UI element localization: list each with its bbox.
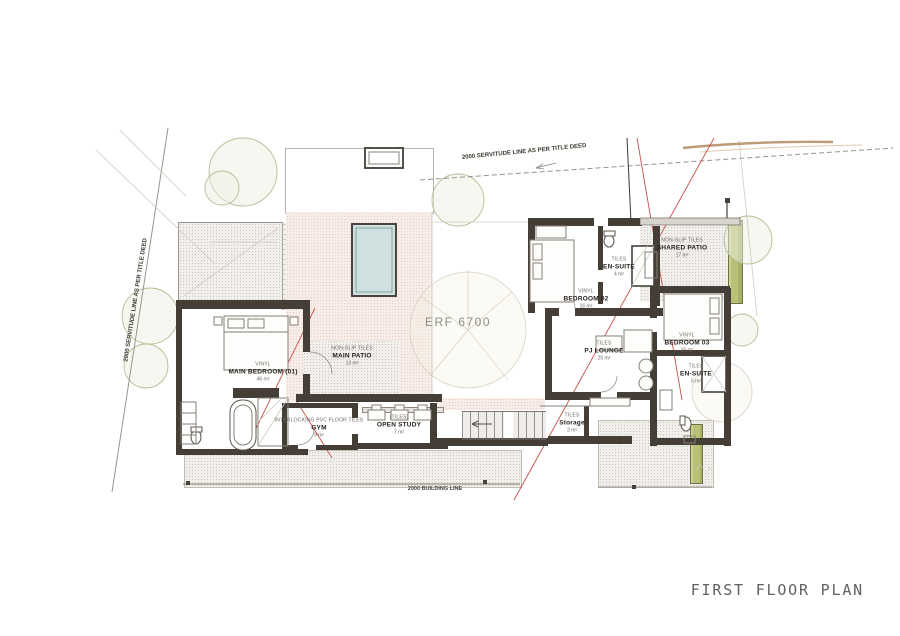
room-area-label: 15 m² — [665, 347, 710, 354]
pillow — [533, 263, 542, 279]
room-label-ensuite-03: TILES EN-SUITE 5 m² — [680, 363, 712, 384]
pillow — [248, 319, 264, 328]
survey-line-dark — [627, 138, 631, 222]
toilet-02 — [604, 235, 614, 247]
skylight — [365, 148, 403, 168]
room-label-open-study: (TILES) OPEN STUDY 7 m² — [377, 414, 421, 435]
sofa-chaise — [624, 330, 652, 352]
room-name-label: PJ LOUNGE — [584, 347, 623, 355]
pillow — [710, 318, 719, 334]
wall-segment — [296, 394, 442, 402]
wall-segment — [282, 403, 358, 408]
survey-line — [96, 150, 215, 264]
chair — [372, 405, 381, 410]
room-name-label: BEDROOM 03 — [665, 339, 710, 347]
room-label-bedroom-03: VINYL BEDROOM 03 15 m² — [665, 332, 710, 353]
tv-unit — [590, 398, 630, 406]
terrace-diagonal — [184, 228, 278, 296]
wall-segment — [548, 436, 632, 444]
wall-segment — [608, 218, 642, 226]
room-area-label: 13 m² — [331, 360, 373, 367]
room-finish-label: INTERLOCKING PVC FLOOR TILES — [275, 417, 364, 424]
door-arc — [310, 352, 332, 374]
chair — [395, 405, 404, 410]
chair — [418, 405, 427, 410]
room-name-label: BEDROOM 02 — [564, 295, 609, 303]
toilet-cistern — [680, 416, 685, 425]
skylight-outer — [365, 148, 403, 168]
room-label-main-bedroom: VINYL MAIN BEDROOM (01) 46 m² — [228, 361, 297, 382]
room-area-label: 16 m² — [564, 303, 609, 310]
wall-segment — [430, 403, 437, 443]
side-table — [290, 317, 298, 325]
room-area-label: 7 m² — [377, 429, 421, 436]
room-name-label: SHARED PATIO — [657, 244, 708, 252]
survey-peg — [632, 485, 636, 489]
room-name-label: Storage — [559, 419, 585, 427]
side-table-round — [639, 359, 653, 373]
wall-segment — [352, 403, 358, 418]
leader-arrow — [536, 163, 556, 169]
room-label-storage: TILES Storage 3 m² — [559, 412, 585, 433]
wall-segment — [303, 300, 310, 352]
survey-peg — [186, 481, 190, 485]
wall-segment — [176, 300, 310, 309]
room-label-pj-lounge: TILES PJ LOUNGE 20 m² — [584, 340, 623, 361]
room-area-label: 46 m² — [228, 376, 297, 383]
room-area-label: 4 m² — [603, 271, 635, 278]
vanity-03 — [660, 390, 672, 410]
stairs-detail — [462, 421, 546, 439]
room-name-label: EN-SUITE — [603, 263, 635, 271]
wall-segment — [528, 218, 594, 226]
wall-segment — [316, 445, 358, 450]
room-label-bedroom-02: VINYL BEDROOM 02 16 m² — [564, 288, 609, 309]
pillow — [710, 298, 719, 314]
stair-arrow-icon — [472, 421, 492, 427]
room-area-label: 9 m² — [275, 432, 364, 439]
pillow — [228, 319, 244, 328]
room-area-label: 5 m² — [680, 378, 712, 385]
floor-plan-sheet: 2000 SERVITUDE LINE AS PER TITLE DEED 20… — [0, 0, 900, 636]
pillow — [533, 244, 542, 260]
room-name-label: GYM — [275, 424, 364, 432]
wall-segment — [545, 308, 552, 400]
closet-02 — [536, 226, 566, 238]
patio-parapet — [640, 218, 740, 225]
door-arc — [601, 376, 617, 392]
survey-peg — [483, 480, 487, 484]
room-name-label: OPEN STUDY — [377, 421, 421, 429]
wall-segment — [656, 438, 731, 445]
survey-line — [120, 130, 186, 196]
room-label-main-patio: NON-SLIP TILES MAIN PATIO 13 m² — [331, 345, 373, 366]
wall-segment — [650, 286, 730, 293]
room-finish-label: NON-SLIP TILES — [657, 237, 708, 244]
tree-sketch — [432, 174, 484, 226]
room-label-gym: INTERLOCKING PVC FLOOR TILES GYM 9 m² — [275, 417, 364, 438]
contour-line — [700, 145, 862, 152]
toilet-cistern — [604, 231, 615, 236]
vanity-counter — [233, 388, 279, 398]
tree-sketch — [205, 171, 239, 205]
room-label-ensuite-02: TILES EN-SUITE 4 m² — [603, 256, 635, 277]
contour-line — [683, 142, 833, 148]
side-table — [214, 317, 222, 325]
building-line-label: 2000 BUILDING LINE — [408, 486, 462, 492]
erf-label: ERF 6700 — [425, 315, 491, 329]
room-label-shared-patio: NON-SLIP TILES SHARED PATIO 17 m² — [657, 237, 708, 258]
patio-post — [725, 198, 730, 203]
pool-outer — [352, 224, 396, 296]
room-area-label: 17 m² — [657, 252, 708, 259]
room-finish-label: NON-SLIP TILES — [331, 345, 373, 352]
side-table-round — [639, 376, 653, 390]
drawing-title: FIRST FLOOR PLAN — [691, 581, 864, 599]
room-area-label: 20 m² — [584, 355, 623, 362]
room-area-label: 3 m² — [559, 427, 585, 434]
room-name-label: MAIN PATIO — [331, 352, 373, 360]
room-name-label: MAIN BEDROOM (01) — [228, 368, 297, 376]
grass-tuft — [696, 464, 714, 474]
room-name-label: EN-SUITE — [680, 370, 712, 378]
pool — [352, 224, 396, 296]
